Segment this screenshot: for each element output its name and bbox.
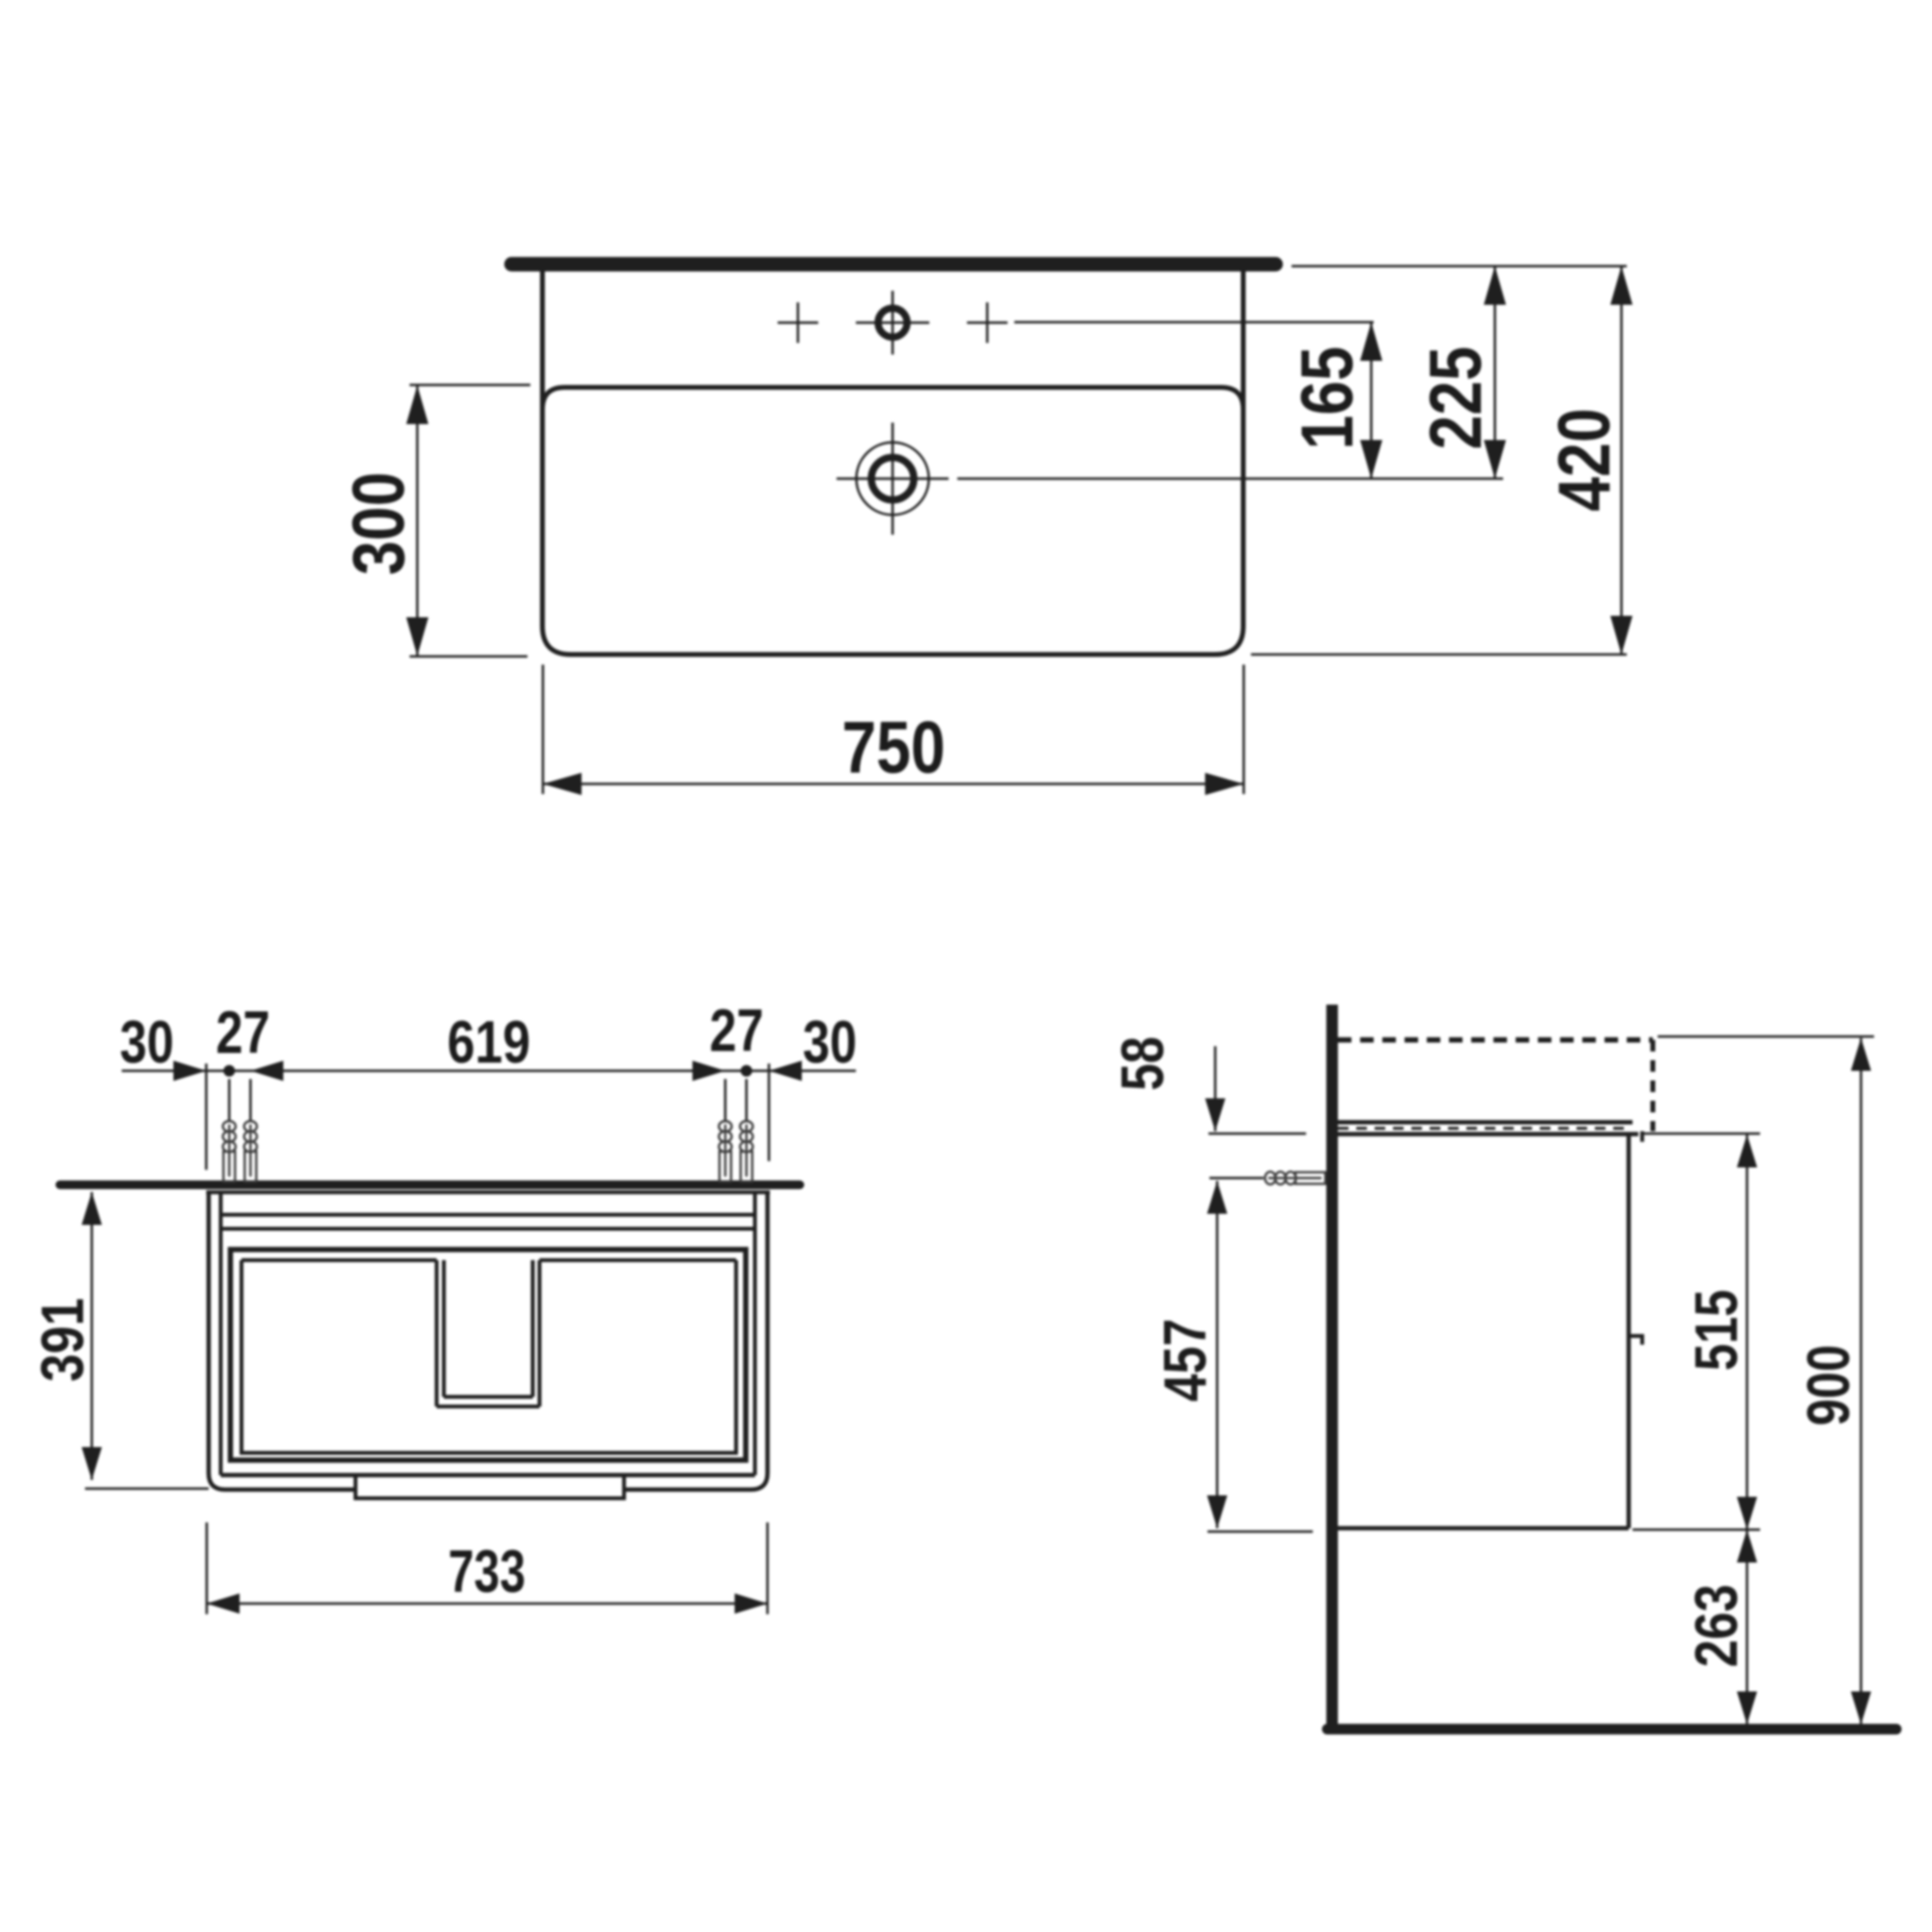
svg-text:225: 225 <box>1415 347 1497 450</box>
svg-text:733: 733 <box>448 1539 526 1605</box>
svg-text:27: 27 <box>710 998 764 1065</box>
svg-text:300: 300 <box>338 472 420 576</box>
svg-text:165: 165 <box>1287 347 1369 450</box>
svg-text:619: 619 <box>447 1009 530 1076</box>
svg-text:263: 263 <box>1684 1584 1750 1667</box>
svg-text:420: 420 <box>1544 409 1626 512</box>
svg-text:515: 515 <box>1684 1290 1750 1371</box>
svg-text:391: 391 <box>30 1298 97 1382</box>
svg-text:30: 30 <box>803 1009 857 1076</box>
svg-text:457: 457 <box>1152 1319 1219 1402</box>
svg-text:750: 750 <box>842 707 946 789</box>
svg-text:30: 30 <box>120 1009 174 1076</box>
svg-text:58: 58 <box>1110 1037 1177 1091</box>
svg-text:27: 27 <box>216 1000 270 1066</box>
svg-text:900: 900 <box>1796 1345 1862 1426</box>
